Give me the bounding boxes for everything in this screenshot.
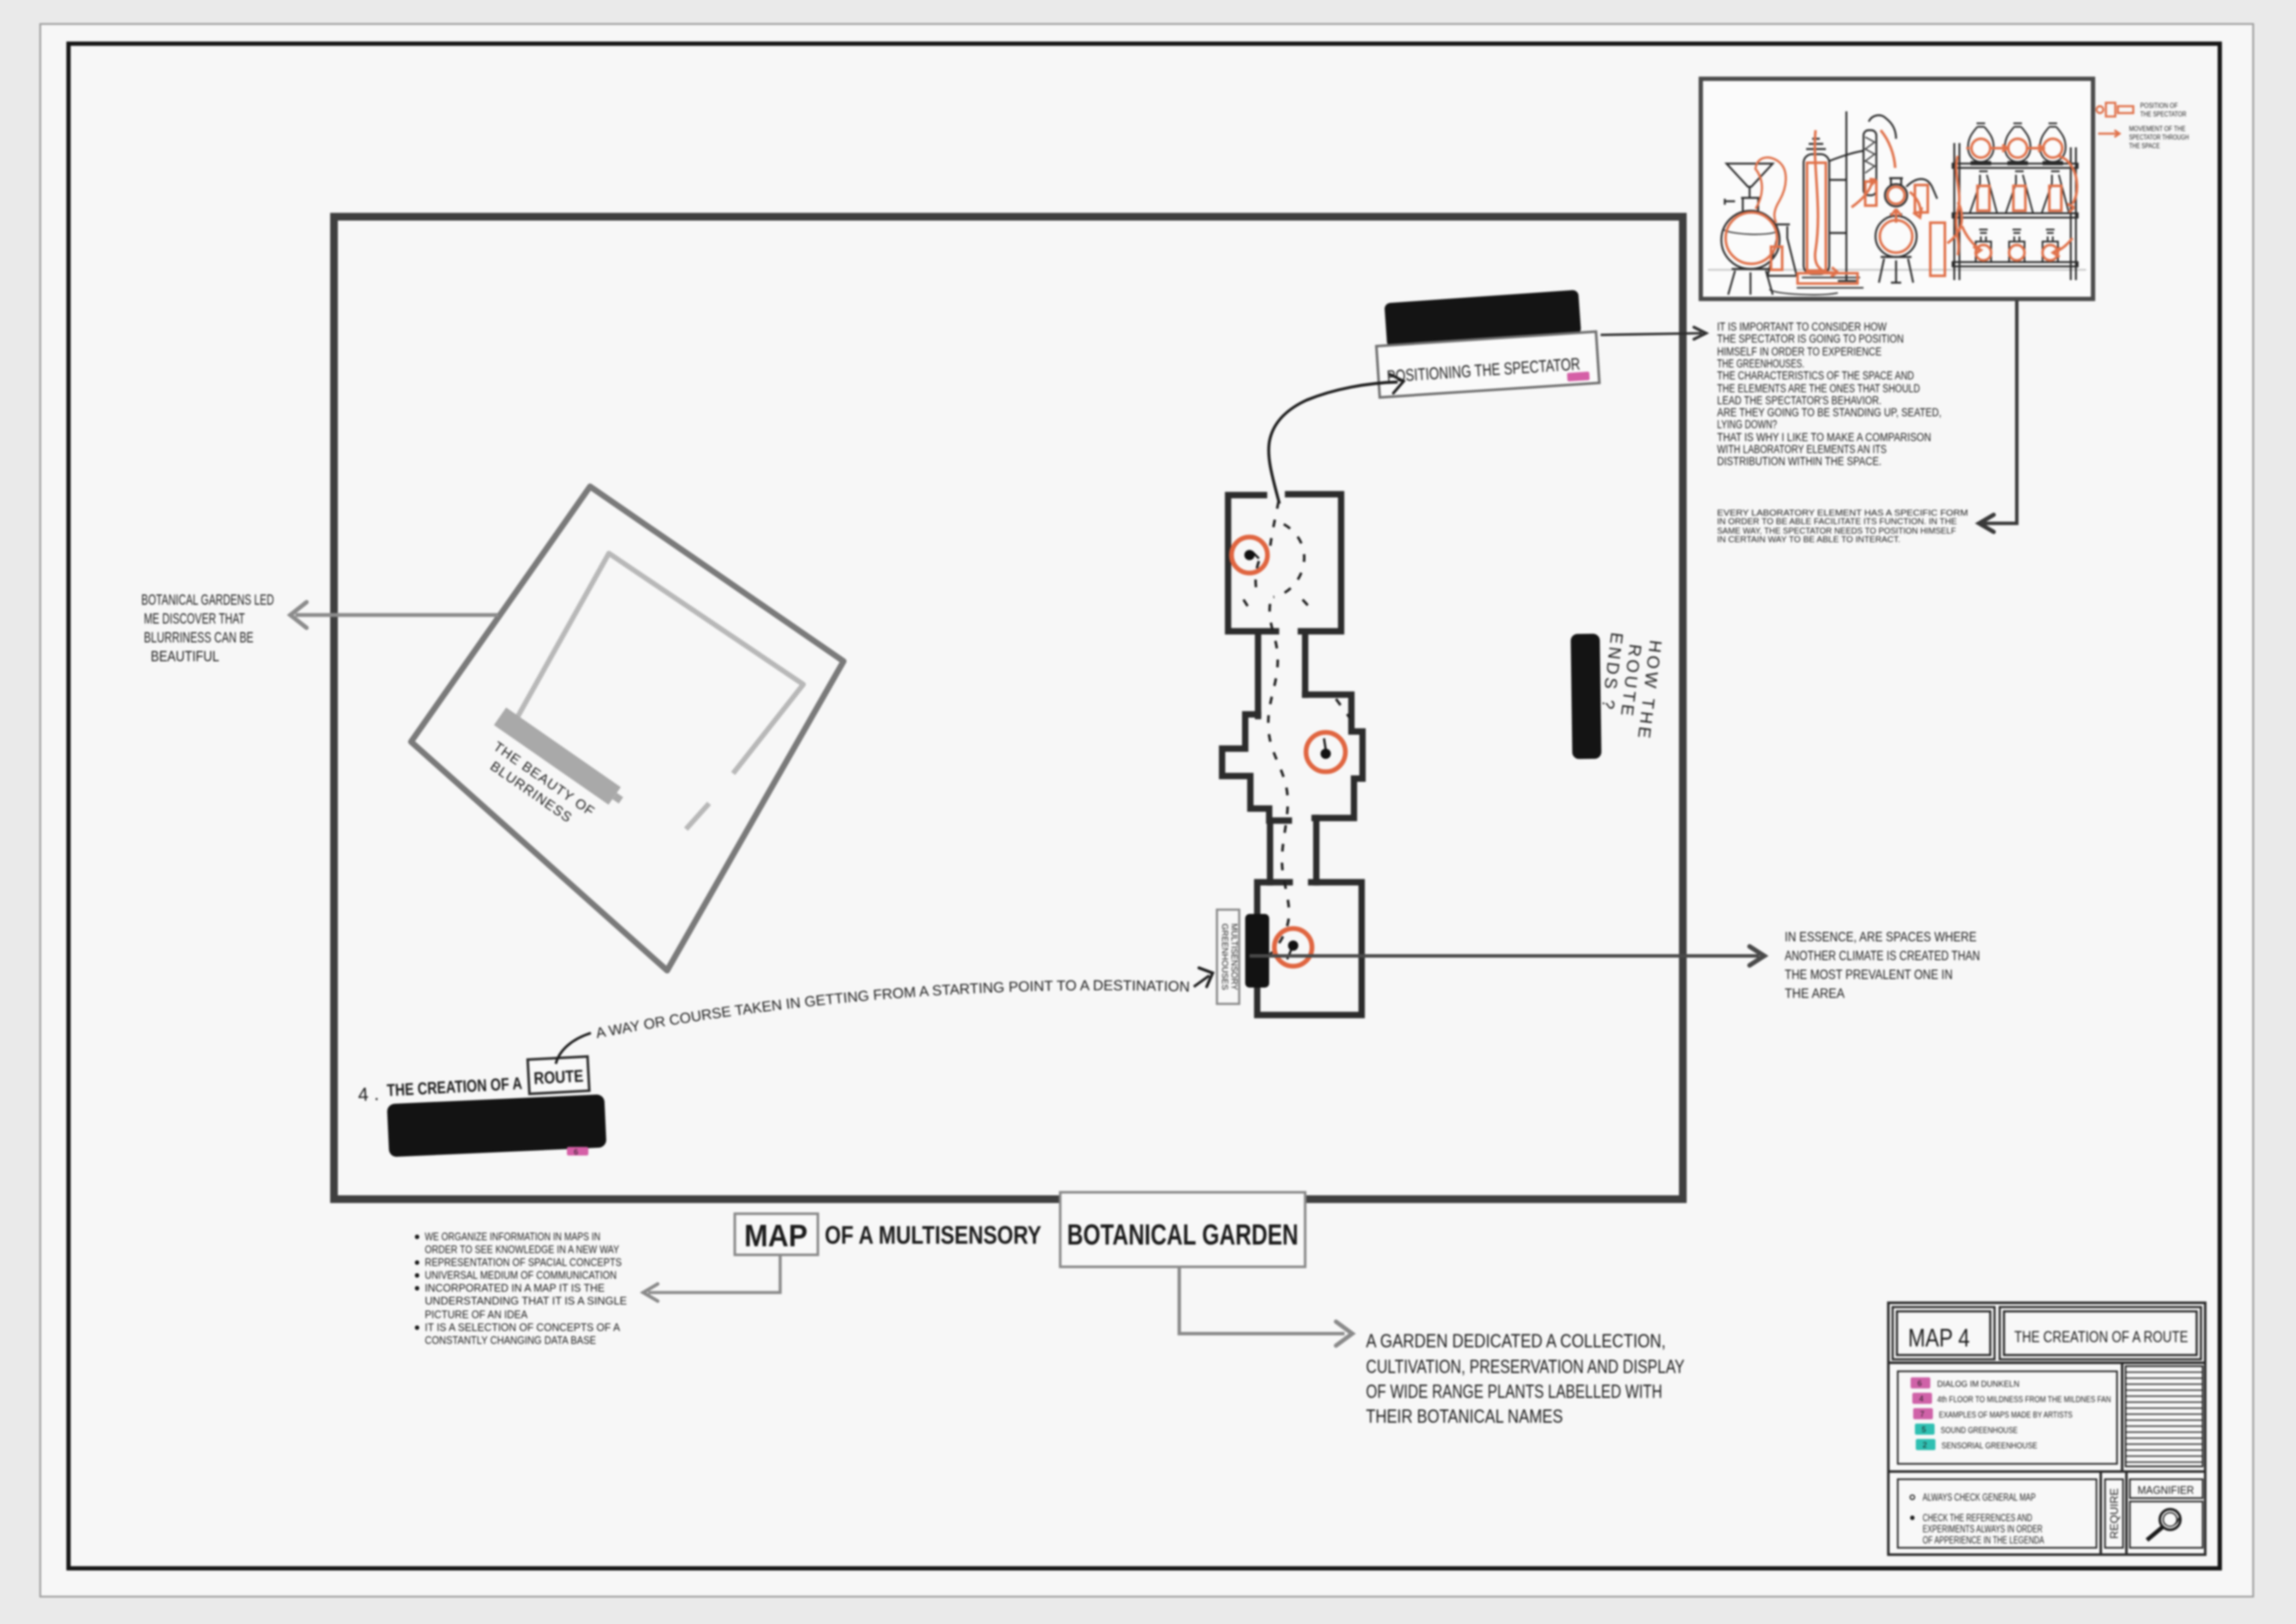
svg-text:THE CHARACTERISTICS OF THE SPA: THE CHARACTERISTICS OF THE SPACE AND [1717,369,1914,382]
svg-text:ROUTE: ROUTE [534,1067,584,1089]
svg-text:6: 6 [574,1148,578,1156]
svg-text:CHECK THE REFERENCES AND: CHECK THE REFERENCES AND [1923,1514,2032,1524]
svg-text:BOTANICAL GARDEN: BOTANICAL GARDEN [1067,1219,1298,1251]
svg-text:2: 2 [1923,1441,1927,1449]
svg-text:THAT IS WHY I LIKE TO MAKE A C: THAT IS WHY I LIKE TO MAKE A COMPARISON [1717,431,1931,444]
svg-text:THE SPECTATOR IS GOING TO POSI: THE SPECTATOR IS GOING TO POSITION [1717,332,1904,345]
svg-text:5: 5 [1922,1425,1926,1434]
svg-text:INCORPORATED IN A MAP IT IS TH: INCORPORATED IN A MAP IT IS THE [425,1281,605,1294]
svg-text:MOVEMENT OF THE: MOVEMENT OF THE [2129,125,2186,133]
svg-text:IN ESSENCE, ARE SPACES WHERE: IN ESSENCE, ARE SPACES WHERE [1785,930,1977,945]
svg-text:ME DISCOVER THAT: ME DISCOVER THAT [144,610,245,627]
svg-text:7: 7 [1920,1410,1924,1418]
svg-text:OF WIDE RANGE PLANTS LABELLED: OF WIDE RANGE PLANTS LABELLED WITH [1366,1381,1662,1402]
svg-text:HIMSELF IN ORDER TO EXPERIENCE: HIMSELF IN ORDER TO EXPERIENCE [1717,345,1882,358]
svg-text:DIALOG IM DUNKELN: DIALOG IM DUNKELN [1937,1379,2019,1389]
svg-text:MAP 4: MAP 4 [1908,1324,1970,1352]
svg-text:4th FLOOR TO MILDNESS FROM THE: 4th FLOOR TO MILDNESS FROM THE MILDNES F… [1937,1394,2111,1405]
svg-text:EXPERIMENTS ALWAYS IN ORDER: EXPERIMENTS ALWAYS IN ORDER [1923,1525,2043,1535]
svg-text:BEAUTIFUL: BEAUTIFUL [151,648,219,665]
svg-text:ARE THEY GOING TO BE STANDING: ARE THEY GOING TO BE STANDING UP, SEATED… [1717,406,1941,419]
svg-text:WE ORGANIZE INFORMATION IN MAP: WE ORGANIZE INFORMATION IN MAPS IN [425,1230,600,1243]
svg-text:UNIVERSAL MEDIUM OF COMMUNICAT: UNIVERSAL MEDIUM OF COMMUNICATION [425,1269,617,1281]
svg-text:MAP: MAP [744,1218,808,1253]
svg-text:THE GREENHOUSES.: THE GREENHOUSES. [1717,357,1804,370]
svg-text:4: 4 [1919,1394,1923,1403]
svg-text:THE SPACE: THE SPACE [2129,142,2160,150]
svg-text:CULTIVATION, PRESERVATION AND: CULTIVATION, PRESERVATION AND DISPLAY [1366,1356,1685,1377]
svg-text:6: 6 [1917,1379,1922,1388]
svg-text:GREENHOUSES: GREENHOUSES [1220,923,1229,990]
svg-text:CONSTANTLY CHANGING DATA BASE: CONSTANTLY CHANGING DATA BASE [425,1334,596,1346]
svg-text:SOUND GREENHOUSE: SOUND GREENHOUSE [1941,1425,2018,1436]
svg-text:POSITION OF: POSITION OF [2140,102,2178,110]
svg-text:THE SPECTATOR: THE SPECTATOR [2140,110,2186,118]
svg-text:MULTISENSORY: MULTISENSORY [1229,923,1238,990]
svg-text:EXAMPLES OF MAPS MADE BY ARTIS: EXAMPLES OF MAPS MADE BY ARTISTS [1939,1410,2072,1420]
svg-text:REPRESENTATION OF SPACIAL CONC: REPRESENTATION OF SPACIAL CONCEPTS [425,1256,622,1269]
svg-text:SENSORIAL GREENHOUSE: SENSORIAL GREENHOUSE [1941,1441,2037,1451]
svg-text:ORDER TO SEE KNOWLEDGE IN A NE: ORDER TO SEE KNOWLEDGE IN A NEW WAY [425,1243,619,1256]
svg-text:THE MOST PREVALENT ONE IN: THE MOST PREVALENT ONE IN [1785,968,1953,982]
svg-text:IN CERTAIN WAY TO BE ABLE TO I: IN CERTAIN WAY TO BE ABLE TO INTERACT. [1717,534,1900,545]
svg-text:REQUIRE: REQUIRE [2108,1488,2120,1539]
svg-text:LYING DOWN?: LYING DOWN? [1717,418,1777,431]
svg-text:MAGNIFIER: MAGNIFIER [2138,1484,2194,1496]
svg-text:ALWAYS CHECK GENERAL MAP: ALWAYS CHECK GENERAL MAP [1923,1493,2036,1503]
svg-text:DISTRIBUTION WITHIN THE SPACE.: DISTRIBUTION WITHIN THE SPACE. [1717,455,1882,468]
svg-text:IT IS A SELECTION OF CONCEPTS: IT IS A SELECTION OF CONCEPTS OF A [425,1321,620,1334]
svg-text:IT IS IMPORTANT TO CONSIDER HO: IT IS IMPORTANT TO CONSIDER HOW [1717,320,1887,333]
svg-text:BOTANICAL GARDENS LED: BOTANICAL GARDENS LED [141,591,274,608]
svg-text:SPECTATOR THROUGH: SPECTATOR THROUGH [2129,134,2189,141]
svg-text:THE CREATION OF A ROUTE: THE CREATION OF A ROUTE [2014,1328,2188,1346]
svg-text:OF APPERIENCE IN THE LEGENDA: OF APPERIENCE IN THE LEGENDA [1923,1536,2044,1546]
svg-text:WITH LABORATORY ELEMENTS AN IT: WITH LABORATORY ELEMENTS AN ITS [1717,443,1887,456]
svg-text:OF A MULTISENSORY: OF A MULTISENSORY [825,1221,1041,1250]
svg-text:THE ELEMENTS ARE THE ONES THAT: THE ELEMENTS ARE THE ONES THAT SHOULD [1717,382,1920,395]
svg-text:THE AREA: THE AREA [1785,987,1845,1001]
svg-text:4 .: 4 . [357,1083,379,1105]
svg-text:UNDERSTANDING THAT IT IS A SIN: UNDERSTANDING THAT IT IS A SINGLE [425,1294,627,1307]
svg-text:THEIR BOTANICAL NAMES: THEIR BOTANICAL NAMES [1366,1406,1563,1427]
svg-text:BLURRINESS CAN BE: BLURRINESS CAN BE [144,629,253,646]
svg-text:PICTURE OF AN IDEA: PICTURE OF AN IDEA [425,1308,528,1321]
svg-text:LEAD THE SPECTATOR'S BEHAVIOR.: LEAD THE SPECTATOR'S BEHAVIOR. [1717,394,1882,407]
svg-text:A GARDEN DEDICATED A COLLECTIO: A GARDEN DEDICATED A COLLECTION, [1366,1330,1666,1352]
svg-text:ANOTHER CLIMATE IS CREATED THA: ANOTHER CLIMATE IS CREATED THAN [1785,949,1980,964]
